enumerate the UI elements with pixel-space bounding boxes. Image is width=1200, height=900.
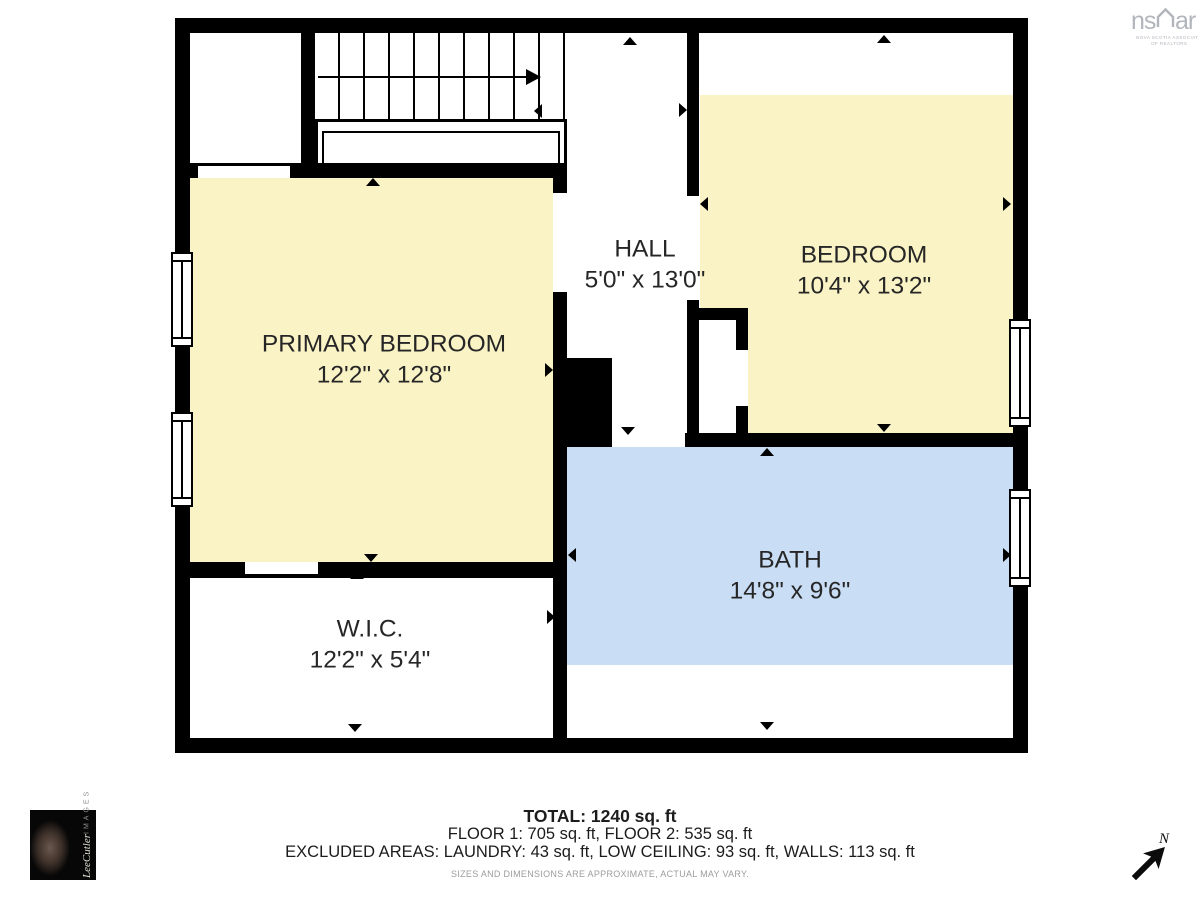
room-label-hall: HALL 5'0" x 13'0" — [585, 234, 706, 297]
room-label-primary-bedroom: PRIMARY BEDROOM 12'2" x 12'8" — [262, 329, 506, 392]
marker-hall-bottom-icon — [621, 427, 635, 435]
room-name: PRIMARY BEDROOM — [262, 329, 506, 360]
nsar-house-icon — [1158, 10, 1173, 28]
floorplan-page: { "rooms": [ { "id": "primary-bedroom", … — [0, 0, 1200, 900]
room-name: HALL — [585, 234, 706, 265]
marker-wic-top-icon — [350, 571, 364, 579]
window-icon-left-1 — [171, 252, 193, 347]
wall-primary-bedroom-bottom — [175, 562, 567, 578]
room-label-bedroom: BEDROOM 10'4" x 13'2" — [797, 240, 931, 303]
photographer-logo-text: LeeCutler IMAGES — [81, 812, 93, 878]
wall-exterior-bottom — [175, 738, 1028, 753]
room-name: BEDROOM — [797, 240, 931, 271]
marker-stairs-left-icon — [534, 104, 542, 118]
room-dims: 12'2" x 12'8" — [262, 360, 506, 391]
photographer-name: LeeCutler — [81, 834, 93, 878]
marker-bedroom-right-icon — [1003, 197, 1011, 211]
stairs-direction-line — [318, 76, 530, 78]
summary-total: TOTAL: 1240 sq. ft — [0, 806, 1200, 827]
north-arrow-icon: N — [1126, 826, 1182, 886]
photographer-word: IMAGES — [84, 789, 91, 834]
marker-primary-right-icon — [545, 363, 553, 377]
nsar-logo-left: ns — [1131, 7, 1156, 35]
door-gap-wic — [245, 562, 318, 574]
marker-bath-right-icon — [1003, 548, 1011, 562]
nsar-logo-right: ar — [1175, 7, 1196, 35]
marker-primary-left-icon — [182, 364, 190, 378]
marker-bath-bottom-icon — [760, 722, 774, 730]
window-icon-right-1 — [1009, 319, 1031, 427]
marker-wic-left-icon — [182, 610, 190, 624]
marker-wic-right-icon — [547, 610, 555, 624]
summary-floors: FLOOR 1: 705 sq. ft, FLOOR 2: 535 sq. ft — [0, 825, 1200, 844]
window-icon-left-2 — [171, 412, 193, 507]
wall-bedroom-left — [687, 33, 699, 196]
photographer-logo: LeeCutler IMAGES — [30, 810, 96, 880]
room-label-bath: BATH 14'8" x 9'6" — [730, 545, 851, 608]
nsar-tagline-1: NOVA SCOTIA ASSOCIATION — [1136, 35, 1198, 40]
room-dims: 14'8" x 9'6" — [730, 576, 851, 607]
marker-primary-bottom-icon — [364, 554, 378, 562]
summary-disclaimer: SIZES AND DIMENSIONS ARE APPROXIMATE, AC… — [0, 869, 1200, 879]
room-dims: 5'0" x 13'0" — [585, 265, 706, 296]
nsar-tagline-2: OF REALTORS — [1151, 41, 1187, 46]
room-name: W.I.C. — [310, 614, 431, 645]
marker-hall-right-icon — [679, 103, 687, 117]
room-dims: 12'2" x 5'4" — [310, 645, 431, 676]
summary-excluded: EXCLUDED AREAS: LAUNDRY: 43 sq. ft, LOW … — [0, 843, 1200, 862]
marker-bath-left-icon — [568, 548, 576, 562]
wall-closet-right-upper — [736, 308, 748, 350]
stair-railing-inner — [322, 131, 560, 167]
door-gap-landing — [198, 166, 290, 178]
wall-exterior-left — [175, 18, 190, 753]
wall-landing-right — [301, 18, 315, 178]
window-icon-right-2 — [1009, 489, 1031, 587]
room-dims: 10'4" x 13'2" — [797, 271, 931, 302]
nsar-logo: ns ar NOVA SCOTIA ASSOCIATION OF REALTOR… — [1130, 4, 1198, 48]
room-name: BATH — [730, 545, 851, 576]
marker-hall-top-icon — [623, 37, 637, 45]
room-label-wic: W.I.C. 12'2" x 5'4" — [310, 614, 431, 677]
wall-closet-left — [687, 300, 699, 447]
marker-primary-top-icon — [366, 178, 380, 186]
marker-bedroom-bottom-icon — [877, 424, 891, 432]
north-label: N — [1158, 831, 1170, 847]
marker-bath-top-icon — [760, 448, 774, 456]
marker-bedroom-top-icon — [877, 35, 891, 43]
marker-bedroom-left-icon — [700, 197, 708, 211]
marker-wic-bottom-icon — [348, 724, 362, 732]
wall-hall-left-lower — [553, 292, 567, 738]
wall-chimney-block — [567, 358, 612, 447]
stairs-direction-arrow-icon — [526, 69, 541, 85]
wall-hall-left-upper — [553, 163, 567, 193]
wall-bath-top — [685, 433, 1013, 447]
